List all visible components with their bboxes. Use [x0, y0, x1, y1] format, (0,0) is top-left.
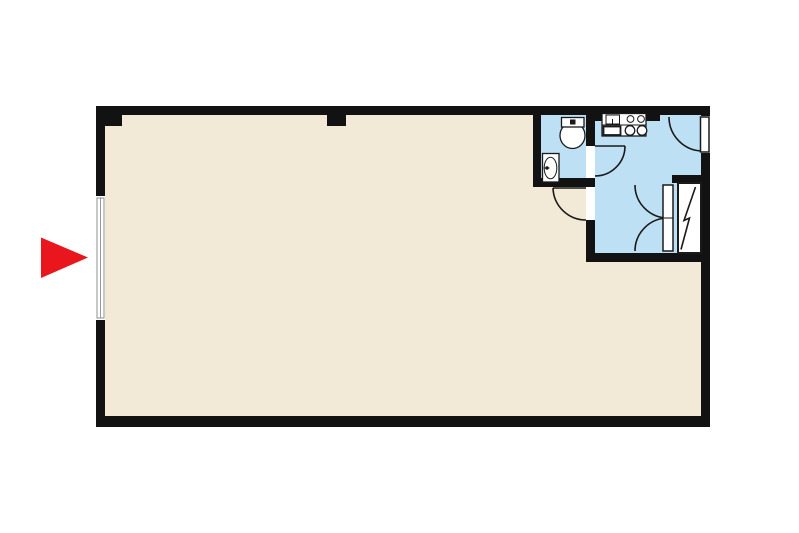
wash-basin	[543, 154, 560, 183]
stove-burner-right-icon	[637, 126, 647, 136]
floor-plan-canvas	[0, 0, 799, 533]
wall-toilet-right	[586, 115, 595, 146]
floor-plan-drawing	[0, 0, 799, 533]
main-room-door-opening	[586, 187, 595, 220]
wash-basin-faucet-icon	[545, 166, 548, 169]
kitchen-counter	[602, 114, 647, 137]
entrance-door-leaf	[701, 117, 710, 152]
wall-above-shaft	[672, 175, 710, 183]
toilet-door-opening	[586, 146, 595, 178]
entrance-arrow-icon	[41, 238, 88, 279]
toilet-flush-button-icon	[570, 120, 576, 125]
wall-column-top-left	[96, 106, 122, 126]
toilet	[560, 118, 585, 149]
window	[96, 196, 105, 320]
wall-column-top-middle	[327, 115, 346, 126]
utility-shaft	[678, 183, 701, 253]
wall-toilet-left	[533, 115, 541, 187]
wall-wet-area-bottom	[586, 253, 710, 262]
stove-burner-left-icon	[625, 126, 635, 136]
kitchen-sink	[604, 127, 621, 136]
